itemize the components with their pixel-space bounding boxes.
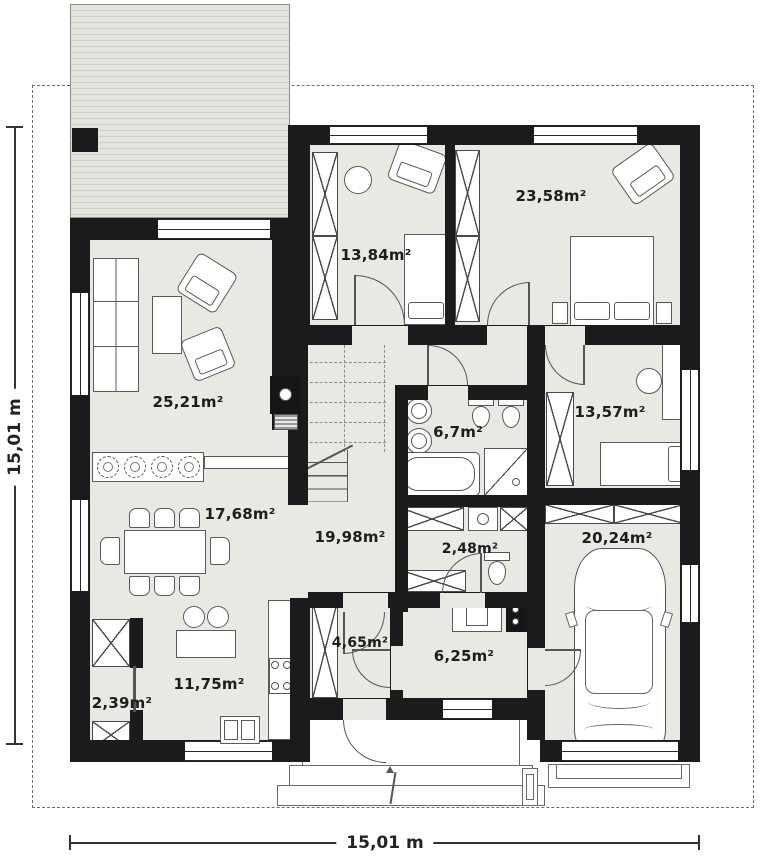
burner-icon: [271, 682, 279, 690]
side-pad-inner: [526, 774, 534, 800]
terrace-pillar: [72, 128, 98, 152]
car-roof: [585, 610, 653, 694]
door-opening: [352, 326, 408, 345]
room-area-label-kitchen: 11,75m²: [173, 675, 244, 693]
nightstand: [552, 302, 568, 324]
stairs-rail-dashed: [344, 340, 345, 452]
wardrobe: [312, 236, 338, 320]
burner-icon: [271, 661, 279, 669]
door-opening: [343, 593, 388, 608]
desk-chair: [636, 368, 662, 394]
half-wall-ledge: [204, 456, 290, 469]
hall-cabinet: [500, 507, 528, 531]
dining-chair: [154, 576, 175, 596]
dining-chair: [179, 508, 200, 528]
wall-segment: [527, 488, 700, 505]
room-area-label-toilet: 2,48m²: [442, 541, 498, 557]
wardrobe: [546, 392, 574, 486]
dimension-tick: [698, 835, 700, 850]
plant-icon: [124, 456, 146, 478]
garage-apron: [556, 764, 682, 779]
room-area-label-bedroom1: 13,84m²: [340, 246, 411, 264]
car-trunk-line: [584, 724, 654, 735]
terrace-sliding-door: [158, 219, 270, 239]
nightstand: [656, 302, 672, 324]
washbasin: [406, 398, 432, 424]
stairs-upper-flight: [300, 422, 386, 423]
dining-chair: [129, 508, 150, 528]
room-area-label-bedroom3: 13,57m²: [574, 403, 645, 421]
window: [185, 741, 272, 761]
door-opening: [528, 648, 545, 690]
chair: [344, 166, 372, 194]
car: [574, 548, 666, 758]
porch-step: [302, 718, 520, 766]
wall-segment: [130, 618, 143, 668]
sink-bowl: [241, 720, 255, 740]
kitchen-table: [176, 630, 236, 658]
plant-icon: [178, 456, 200, 478]
porch-step: [277, 785, 545, 806]
window: [534, 126, 637, 144]
dimension-tick: [6, 743, 23, 745]
wall-segment: [395, 495, 530, 507]
dimension-label-bottom: 15,01 m: [336, 833, 433, 853]
sofa: [93, 258, 139, 392]
car-rear-window: [588, 694, 650, 709]
window: [71, 500, 89, 591]
dining-table: [124, 530, 206, 574]
garage-storage: [614, 504, 683, 524]
door-opening: [545, 326, 585, 345]
door-leaf: [528, 282, 530, 325]
terrace: [70, 4, 290, 218]
wall-segment: [445, 145, 455, 325]
shower: [484, 448, 528, 496]
room-area-label-hall: 19,98m²: [314, 528, 385, 546]
dimension-tick: [69, 835, 71, 850]
garage-storage: [545, 504, 614, 524]
wall-segment: [130, 710, 143, 740]
boiler-door: [466, 606, 488, 626]
room-area-label-living: 25,21m²: [152, 393, 223, 411]
dimension-tick: [6, 126, 23, 128]
stairs-upper-flight: [300, 382, 386, 383]
fireplace-grille: [274, 414, 298, 430]
room-area-label-pantry: 2,39m²: [92, 694, 152, 712]
kitchen-chair: [183, 606, 205, 628]
bathtub: [398, 452, 480, 496]
porch-step: [289, 765, 533, 786]
plant-icon: [151, 456, 173, 478]
porch-arrow-head: [386, 766, 394, 773]
room-area-label-dining: 17,68m²: [204, 505, 275, 523]
dining-chair: [179, 576, 200, 596]
door-leaf: [354, 275, 356, 325]
garage-door: [562, 741, 678, 761]
pillow: [614, 302, 650, 320]
floor-plan: 15,01 m 15,01 m: [0, 0, 768, 859]
kitchen-chair: [207, 606, 229, 628]
pillow: [574, 302, 610, 320]
dining-chair: [100, 537, 120, 565]
door-leaf: [427, 345, 429, 385]
room-area-label-garage: 20,24m²: [581, 529, 652, 547]
entry-door-opening: [343, 699, 386, 720]
wardrobe: [312, 152, 338, 236]
stairs-upper-flight: [300, 402, 386, 403]
door-leaf: [545, 649, 581, 651]
door-opening: [428, 386, 468, 400]
wall-segment: [290, 598, 310, 762]
washer-drum-icon: [477, 513, 489, 525]
door-leaf: [583, 345, 585, 385]
pillow: [408, 302, 444, 319]
stairs-upper-flight: [300, 362, 386, 363]
dimension-label-left: 15,01 m: [5, 388, 25, 485]
plant-icon: [97, 456, 119, 478]
furnace-dial-icon: [512, 618, 519, 625]
dining-chair: [154, 508, 175, 528]
door-leaf: [480, 553, 482, 593]
wardrobe: [455, 150, 480, 236]
window: [330, 126, 427, 144]
coffee-table: [152, 296, 182, 354]
fireplace-flue-icon: [279, 388, 292, 401]
stairs-upper-flight: [300, 442, 386, 443]
room-area-label-bathroom: 6,7m²: [433, 423, 483, 441]
window: [681, 370, 699, 470]
room-area-label-entry: 4,65m²: [332, 635, 388, 651]
room-area-label-utility: 6,25m²: [434, 647, 494, 665]
hall-cabinet: [400, 507, 464, 531]
door-opening: [391, 646, 403, 690]
washbasin: [406, 428, 432, 454]
wardrobe: [455, 236, 480, 322]
window: [71, 293, 89, 395]
pantry-wardrobe: [92, 619, 130, 667]
window: [443, 699, 492, 719]
door-opening: [440, 593, 485, 608]
dining-chair: [210, 537, 230, 565]
sink-bowl: [224, 720, 238, 740]
window: [681, 565, 699, 622]
room-area-label-bedroom2: 23,58m²: [515, 187, 586, 205]
door-opening: [487, 326, 527, 345]
stairs-rail-dashed: [384, 340, 385, 452]
wall-segment: [308, 592, 530, 608]
dining-chair: [129, 576, 150, 596]
